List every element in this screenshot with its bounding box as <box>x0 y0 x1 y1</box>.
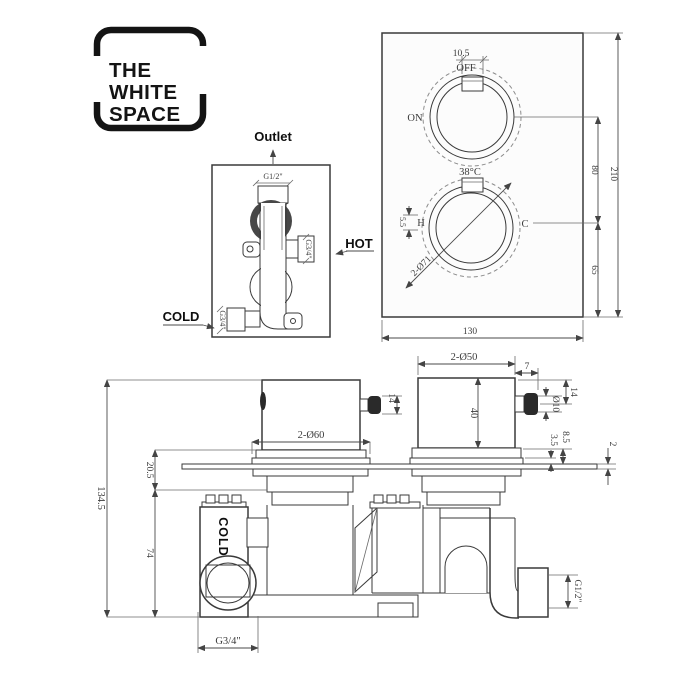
left-nut <box>232 495 241 503</box>
cold-port <box>227 308 245 331</box>
side-view: Outlet G1/2" G3/4" HOT <box>163 129 374 337</box>
dim-total: 134.5 <box>95 486 106 510</box>
mounting-ear <box>243 242 260 257</box>
dim-tab-width: 10.5 <box>453 49 470 59</box>
brand-logo: THE WHITE SPACE <box>92 30 209 128</box>
right-cartridge-neck <box>427 492 500 505</box>
outlet-connector <box>518 568 548 617</box>
dim-left-pin: 14 <box>386 393 396 403</box>
logo-frame-gap-right <box>199 46 209 94</box>
body-connector <box>247 518 268 547</box>
dim-lower: 65 <box>589 265 599 275</box>
cold-stub <box>245 311 260 327</box>
off-label: OFF <box>456 63 475 74</box>
dim-depth-a: 8.5 <box>560 431 570 443</box>
logo-line-3: SPACE <box>109 103 181 126</box>
dim-knob-height: 40 <box>468 408 479 419</box>
left-cartridge-neck <box>272 492 348 505</box>
temp-label: 38°C <box>459 167 481 178</box>
hot-arrow <box>336 251 348 254</box>
logo-line-1: THE <box>109 59 152 82</box>
right-cartridge-cup <box>422 476 505 492</box>
lower-dial-tab <box>462 178 483 192</box>
right-nut <box>400 495 409 503</box>
right-nut <box>374 495 383 503</box>
pipe-body <box>261 203 285 313</box>
right-pin-cap <box>524 393 538 415</box>
dim-spacing: 80 <box>589 165 599 175</box>
cold-label: COLD <box>163 309 200 324</box>
dim-right-knob: 2-Ø50 <box>451 352 478 363</box>
cold-body-label: COLD <box>216 517 230 556</box>
left-pin-cap <box>368 396 381 414</box>
left-knob-pin-back <box>260 392 266 410</box>
cold-thread-label: G3/4" <box>218 310 227 329</box>
dim-pin-offset: 7 <box>525 362 530 372</box>
outlet-thread-label: G1/2" <box>263 172 282 181</box>
right-knob-flange <box>410 458 523 464</box>
dim-handle: 5.5 <box>398 217 407 227</box>
outlet-label: Outlet <box>254 129 292 144</box>
technical-drawing-page: THE WHITE SPACE Outlet G1/2" G3/4" <box>0 0 674 675</box>
left-knob-skirt <box>256 450 366 458</box>
hot-mark: H <box>417 218 425 229</box>
right-nut <box>387 495 396 503</box>
hot-stub <box>286 240 298 258</box>
upper-dial-tab <box>462 77 483 91</box>
left-nut <box>219 495 228 503</box>
base-notch <box>378 603 413 617</box>
right-knob-skirt <box>412 448 521 458</box>
section-view: 14 2-Ø60 COLD G3/4" <box>95 352 617 653</box>
outlet-thread-dim: G1/2" <box>572 580 582 603</box>
drawing-canvas: THE WHITE SPACE Outlet G1/2" G3/4" <box>0 0 674 675</box>
front-view: 10.5 OFF ON 38°C H C 5.5 2-Ø71 80 65 210 <box>382 33 623 342</box>
left-cartridge-cup <box>267 476 353 492</box>
cold-port-outer <box>200 556 256 610</box>
dim-right-pin: 14 <box>568 387 578 397</box>
left-escutcheon <box>253 469 368 476</box>
cold-thread-dim: G3/4" <box>215 636 240 647</box>
logo-frame-gap-left <box>92 56 102 102</box>
logo-line-2: WHITE <box>109 81 178 104</box>
dim-width: 130 <box>463 327 478 337</box>
dim-body: 74 <box>144 548 154 558</box>
dim-height: 210 <box>608 167 618 182</box>
right-knob <box>418 378 515 448</box>
right-escutcheon <box>412 469 521 476</box>
dim-plate: 2 <box>607 442 617 447</box>
on-label: ON <box>407 113 423 124</box>
left-pin-stub <box>360 399 368 411</box>
left-nut <box>206 495 215 503</box>
cold-mark: C <box>521 219 528 230</box>
dim-recess: 20.5 <box>144 462 154 479</box>
check-valve-dome <box>445 546 487 593</box>
hot-label: HOT <box>345 236 373 251</box>
dim-depth-b: 3.5 <box>548 434 558 446</box>
left-knob-flange <box>252 458 370 464</box>
right-pin-stub <box>515 396 524 412</box>
wall-plate <box>182 464 597 469</box>
dim-left-knob: 2-Ø60 <box>298 430 325 441</box>
mounting-ear <box>284 313 302 329</box>
hot-thread-label: G3/4" <box>304 239 313 258</box>
